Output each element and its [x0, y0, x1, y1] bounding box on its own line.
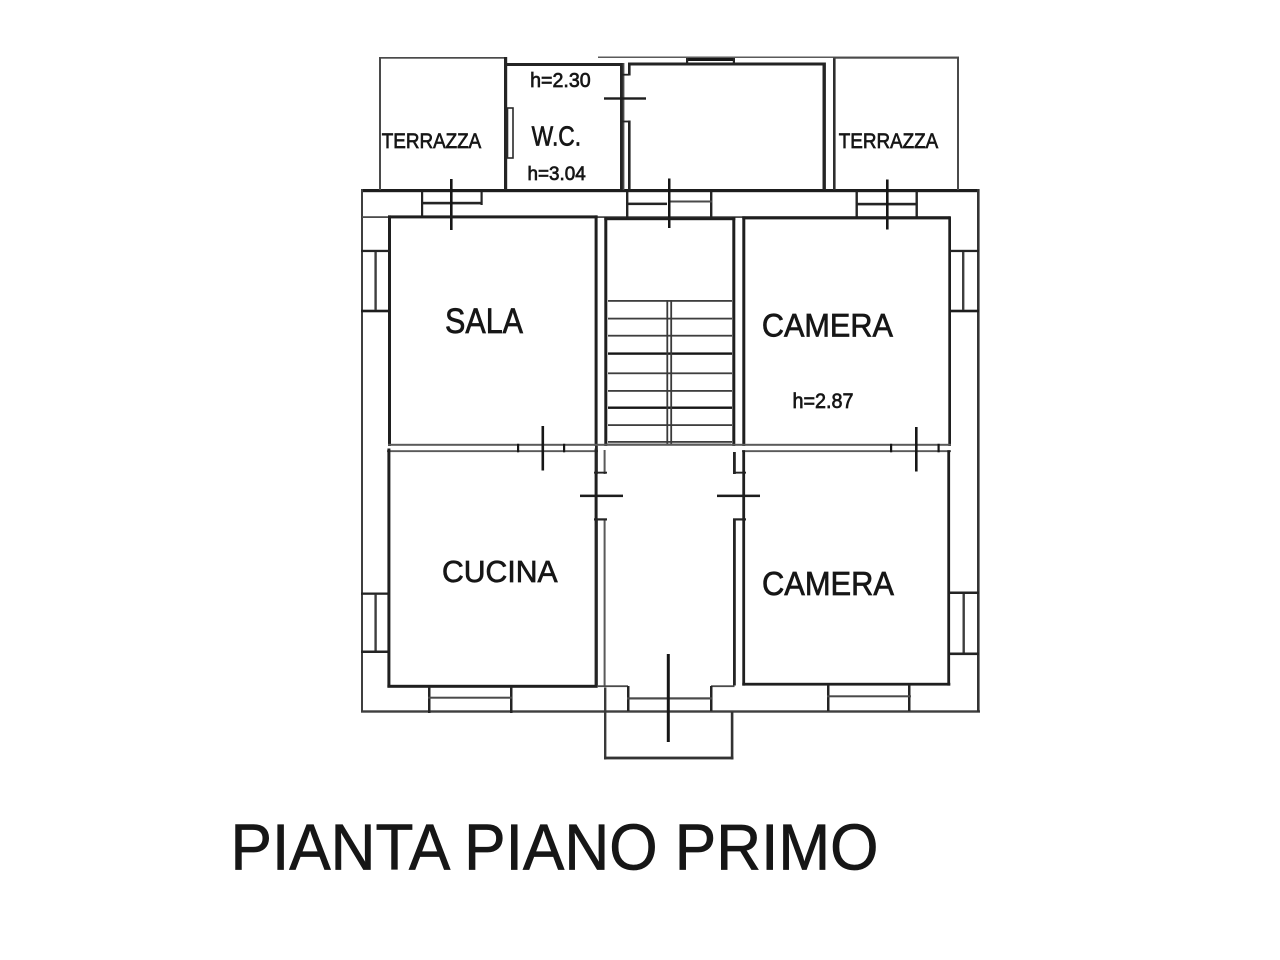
svg-text:h=2.87: h=2.87	[793, 390, 854, 413]
svg-text:W.C.: W.C.	[532, 121, 582, 152]
svg-text:TERRAZZA: TERRAZZA	[382, 129, 482, 153]
svg-text:CUCINA: CUCINA	[442, 554, 558, 589]
svg-text:SALA: SALA	[445, 302, 524, 341]
svg-text:CAMERA: CAMERA	[762, 565, 894, 602]
svg-text:PIANTA PIANO PRIMO: PIANTA PIANO PRIMO	[231, 812, 879, 884]
svg-text:TERRAZZA: TERRAZZA	[839, 129, 939, 153]
svg-text:h=3.04: h=3.04	[528, 163, 586, 185]
svg-text:h=2.30: h=2.30	[530, 70, 591, 92]
svg-text:CAMERA: CAMERA	[762, 308, 894, 344]
